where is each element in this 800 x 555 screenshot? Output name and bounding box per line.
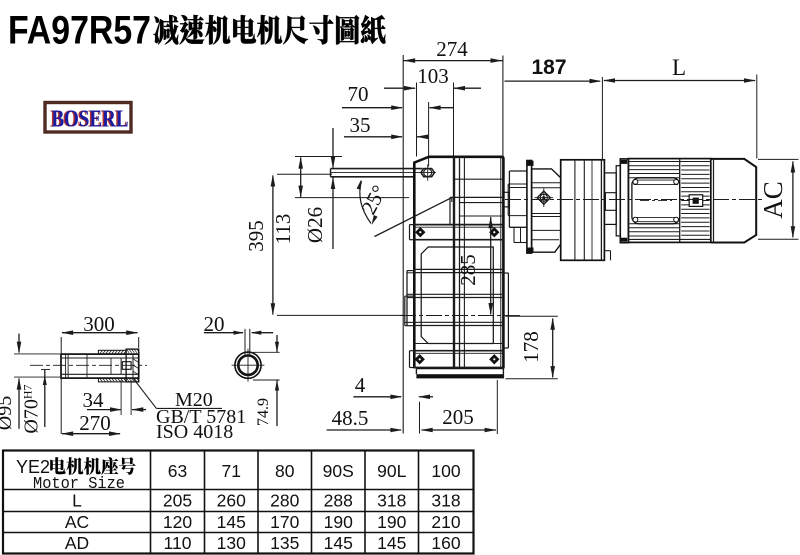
- svg-text:318: 318: [431, 491, 460, 511]
- svg-text:90S: 90S: [323, 461, 354, 481]
- svg-text:210: 210: [431, 512, 460, 532]
- svg-text:120: 120: [163, 512, 192, 532]
- svg-text:110: 110: [164, 533, 192, 553]
- svg-text:130: 130: [217, 533, 246, 553]
- svg-text:145: 145: [217, 512, 246, 532]
- svg-text:80: 80: [275, 461, 295, 481]
- svg-text:Ø26: Ø26: [303, 207, 327, 243]
- svg-text:63: 63: [168, 461, 187, 481]
- svg-text:L: L: [72, 491, 82, 511]
- svg-text:187: 187: [531, 56, 566, 79]
- svg-text:AD: AD: [65, 533, 89, 553]
- svg-text:AC: AC: [65, 512, 89, 532]
- svg-text:190: 190: [377, 512, 406, 532]
- svg-text:Ø95: Ø95: [0, 396, 16, 430]
- svg-text:318: 318: [377, 491, 406, 511]
- svg-text:285: 285: [456, 254, 480, 286]
- svg-text:274: 274: [436, 37, 468, 61]
- svg-text:145: 145: [324, 533, 353, 553]
- svg-text:ISO 4018: ISO 4018: [156, 421, 233, 443]
- svg-text:288: 288: [324, 491, 353, 511]
- svg-text:205: 205: [442, 405, 474, 429]
- svg-text:135: 135: [270, 533, 299, 553]
- svg-text:4: 4: [355, 373, 366, 397]
- svg-text:100: 100: [431, 461, 460, 481]
- svg-text:178: 178: [519, 331, 543, 363]
- svg-text:113: 113: [271, 214, 295, 245]
- svg-text:205: 205: [163, 491, 192, 511]
- svg-text:260: 260: [217, 491, 246, 511]
- svg-text:70: 70: [348, 82, 369, 106]
- svg-text:90L: 90L: [377, 461, 406, 481]
- svg-text:34: 34: [83, 388, 105, 412]
- svg-text:280: 280: [270, 491, 299, 511]
- svg-text:190: 190: [324, 512, 353, 532]
- svg-text:71: 71: [222, 461, 241, 481]
- svg-text:AC: AC: [758, 181, 788, 219]
- svg-text:103: 103: [417, 64, 449, 88]
- svg-text:395: 395: [244, 220, 268, 252]
- svg-text:BOSERL: BOSERL: [52, 107, 129, 133]
- svg-text:170: 170: [270, 512, 299, 532]
- svg-text:74.9: 74.9: [255, 398, 272, 426]
- svg-text:FA97R57: FA97R57: [8, 9, 151, 53]
- svg-text:L: L: [672, 55, 686, 80]
- svg-text:160: 160: [431, 533, 460, 553]
- svg-text:35: 35: [350, 113, 371, 137]
- svg-text:145: 145: [377, 533, 406, 553]
- svg-text:48.5: 48.5: [332, 406, 369, 430]
- svg-text:270: 270: [79, 411, 111, 435]
